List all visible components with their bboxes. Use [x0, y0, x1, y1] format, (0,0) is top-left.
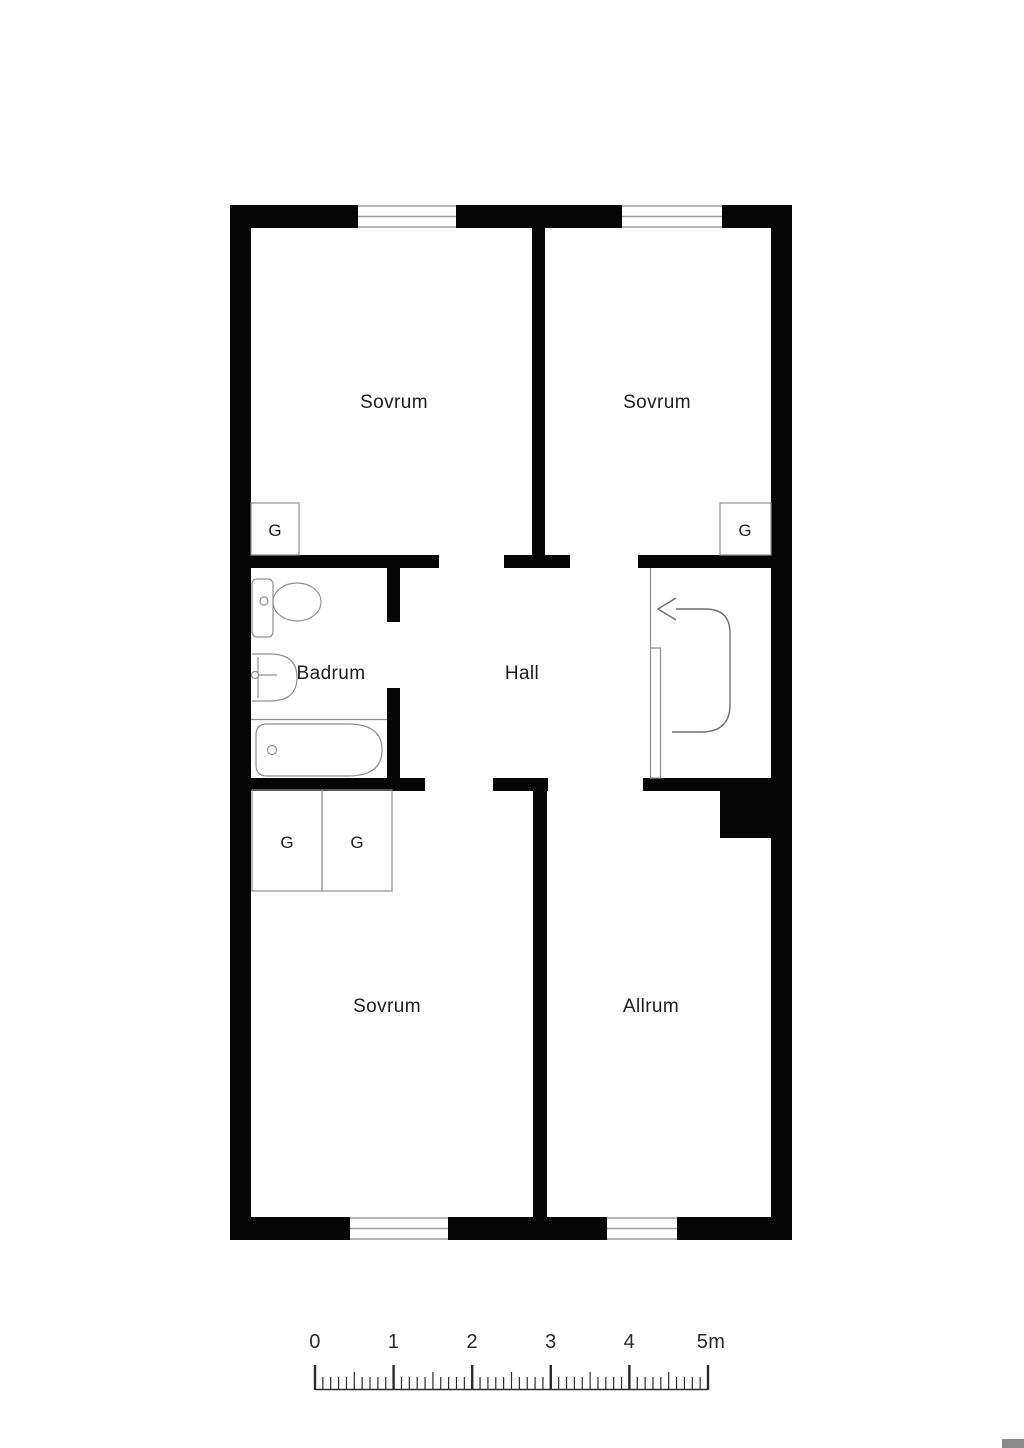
- bathtub-icon: [251, 720, 387, 777]
- wall-mid-row2-left: [251, 778, 425, 791]
- wall-bathroom-upper: [387, 567, 400, 622]
- closet-label: G: [268, 521, 281, 540]
- floor-plan-page: G G G G Sovrum Sovrum Badr: [0, 0, 1024, 1448]
- scale-tick: [417, 1377, 418, 1390]
- window-top-right: [622, 204, 722, 229]
- scale-tick: [613, 1377, 614, 1390]
- wall-left: [230, 205, 251, 1240]
- scale-tick: [471, 1365, 473, 1390]
- scale-tick: [645, 1377, 646, 1390]
- toilet-bowl: [273, 583, 321, 621]
- window-bottom-left: [350, 1216, 448, 1241]
- scale-label-4: 4: [624, 1331, 635, 1353]
- wall-mid-row2-right: [643, 778, 771, 791]
- wall-mid-row2-center: [493, 778, 548, 791]
- scale-tick: [464, 1377, 465, 1390]
- scale-tick: [456, 1377, 457, 1390]
- room-label-sovrum-top-right: Sovrum: [623, 392, 691, 413]
- scale-label-2: 2: [466, 1331, 477, 1353]
- wall-bedroom-divider-top: [532, 228, 545, 555]
- scale-tick: [314, 1365, 316, 1390]
- scale-tick: [487, 1377, 488, 1390]
- scale-tick: [362, 1377, 363, 1390]
- room-label-hall: Hall: [505, 663, 539, 684]
- closet-label: G: [350, 833, 363, 852]
- scale-tick: [511, 1372, 512, 1390]
- scale-tick: [605, 1377, 606, 1390]
- scale-tick: [707, 1365, 709, 1390]
- closet-label: G: [280, 833, 293, 852]
- scale-tick: [692, 1377, 693, 1390]
- wall-entrance-block: [720, 790, 792, 838]
- wall-bottom: [230, 1217, 792, 1240]
- wall-right: [771, 205, 792, 1240]
- scale-tick: [628, 1365, 630, 1390]
- scale-tick: [542, 1377, 543, 1390]
- wall-bathroom-lower: [387, 688, 400, 791]
- closet-label: G: [738, 521, 751, 540]
- scale-tick: [519, 1377, 520, 1390]
- scale-tick: [322, 1377, 323, 1390]
- wall-mid-row1-center: [504, 555, 570, 568]
- scale-tick: [590, 1372, 591, 1390]
- scale-tick: [377, 1377, 378, 1390]
- scale-tick: [392, 1365, 394, 1390]
- scale-tick: [432, 1372, 433, 1390]
- scale-tick: [637, 1377, 638, 1390]
- scale-tick: [440, 1377, 441, 1390]
- scale-tick: [346, 1377, 347, 1390]
- scale-tick: [503, 1377, 504, 1390]
- scale-tick: [330, 1377, 331, 1390]
- scale-label-5: 5m: [697, 1331, 725, 1353]
- scale-tick: [597, 1377, 598, 1390]
- scale-tick: [534, 1377, 535, 1390]
- scale-tick: [479, 1377, 480, 1390]
- floor-plan: G G G G Sovrum Sovrum Badr: [0, 0, 1024, 1448]
- window-top-left: [358, 204, 456, 229]
- scale-tick: [558, 1377, 559, 1390]
- toilet-tank: [252, 579, 273, 637]
- scale-tick: [409, 1377, 410, 1390]
- scale-tick: [676, 1377, 677, 1390]
- scale-tick: [527, 1377, 528, 1390]
- wall-mid-row1-right: [638, 555, 771, 568]
- room-label-allrum: Allrum: [623, 996, 679, 1017]
- scale-tick: [574, 1377, 575, 1390]
- room-label-badrum: Badrum: [297, 663, 366, 684]
- scale-tick: [385, 1377, 386, 1390]
- scale-tick: [621, 1377, 622, 1390]
- scale-tick: [582, 1377, 583, 1390]
- scale-tick: [550, 1365, 552, 1390]
- scale-tick: [566, 1377, 567, 1390]
- room-label-sovrum-bottom: Sovrum: [353, 996, 421, 1017]
- sink-icon: [252, 654, 298, 701]
- scale-label-3: 3: [545, 1331, 556, 1353]
- sink-outline: [252, 654, 297, 701]
- bathtub-outline: [256, 724, 382, 776]
- scale-tick: [354, 1372, 355, 1390]
- window-bottom-right: [607, 1216, 677, 1241]
- scale-tick: [338, 1377, 339, 1390]
- scale-tick: [700, 1377, 701, 1390]
- wall-mid-row1-left: [251, 555, 439, 568]
- scale-tick: [668, 1372, 669, 1390]
- entrance-door-leaf: [651, 648, 661, 778]
- scale-tick: [495, 1377, 496, 1390]
- corner-gray-block: [1002, 1439, 1024, 1448]
- scale-tick: [448, 1377, 449, 1390]
- room-label-sovrum-top-left: Sovrum: [360, 392, 428, 413]
- scale-label-0: 0: [309, 1331, 320, 1353]
- scale-tick: [424, 1377, 425, 1390]
- scale-tick: [401, 1377, 402, 1390]
- scale-tick: [652, 1377, 653, 1390]
- scale-tick: [369, 1377, 370, 1390]
- wall-bedroom-divider-bottom: [533, 790, 547, 1217]
- scale-tick: [660, 1377, 661, 1390]
- scale-tick: [684, 1377, 685, 1390]
- scale-label-1: 1: [388, 1331, 399, 1353]
- sink-faucet: [252, 672, 259, 679]
